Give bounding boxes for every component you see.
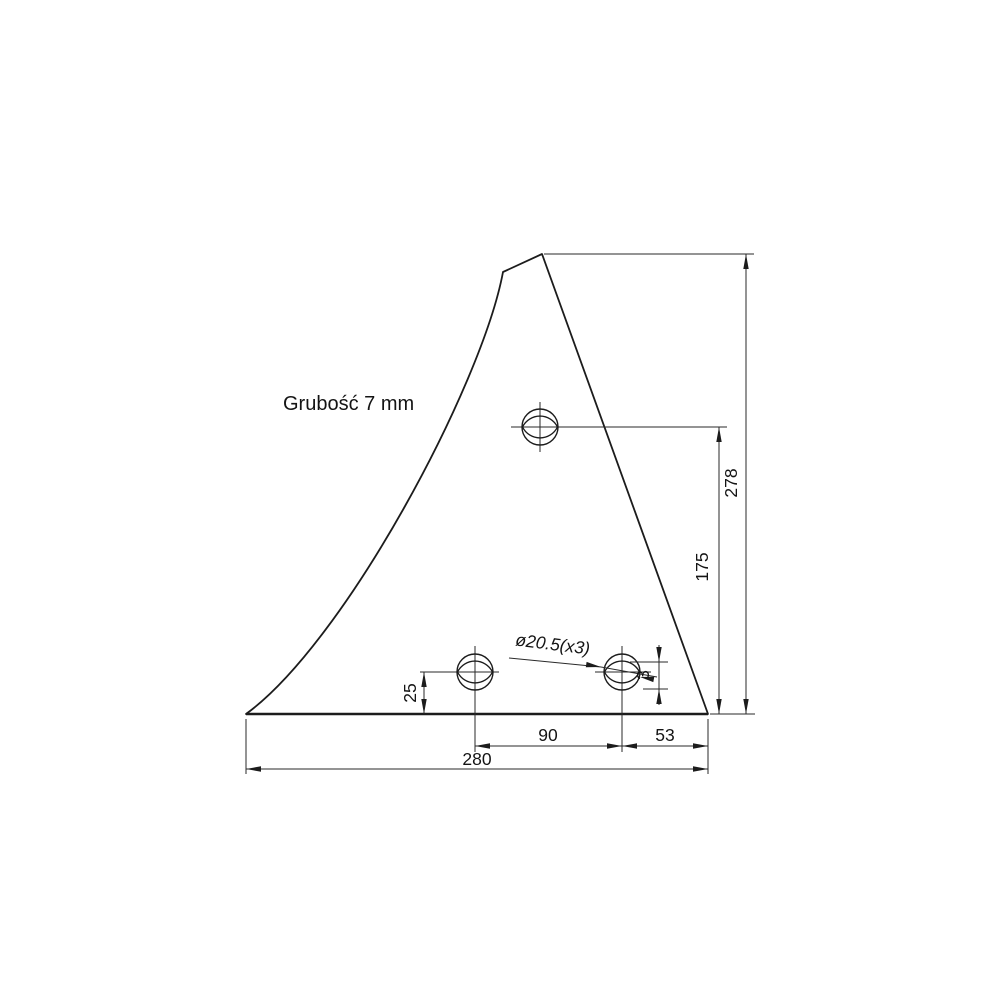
dim53-value: 53: [655, 725, 674, 745]
dim278-arrow-down: [743, 699, 748, 714]
dim278-value: 278: [721, 468, 741, 497]
dim-hole-spacing-row: 90 53: [475, 725, 708, 749]
dim90-arrow-right: [607, 743, 622, 748]
dim280-arrow-left: [246, 766, 261, 771]
plow-blade-drawing: Grubość 7 mm ø20.5(x3) 3 25: [0, 0, 1000, 1000]
dim90-value: 90: [538, 725, 558, 745]
dim90-arrow-left: [475, 743, 490, 748]
dim175-arrow-up: [716, 427, 721, 442]
dim-top-hole-height: 175: [692, 427, 722, 714]
dim53-arrow-right: [693, 743, 708, 748]
hole-top: [511, 402, 727, 452]
technical-drawing-page: Grubość 7 mm ø20.5(x3) 3 25: [0, 0, 1000, 1000]
dim175-value: 175: [692, 552, 712, 581]
dim53-arrow-left: [622, 743, 637, 748]
dim280-value: 280: [462, 749, 491, 769]
dim25-value: 25: [400, 683, 420, 702]
dim3-value: 3: [633, 670, 653, 680]
dim280-arrow-right: [693, 766, 708, 771]
blade-outline: [246, 254, 708, 714]
dim278-arrow-up: [743, 254, 748, 269]
blade-shape: [246, 254, 708, 714]
thickness-note: Grubość 7 mm: [283, 393, 414, 415]
dim175-arrow-down: [716, 699, 721, 714]
